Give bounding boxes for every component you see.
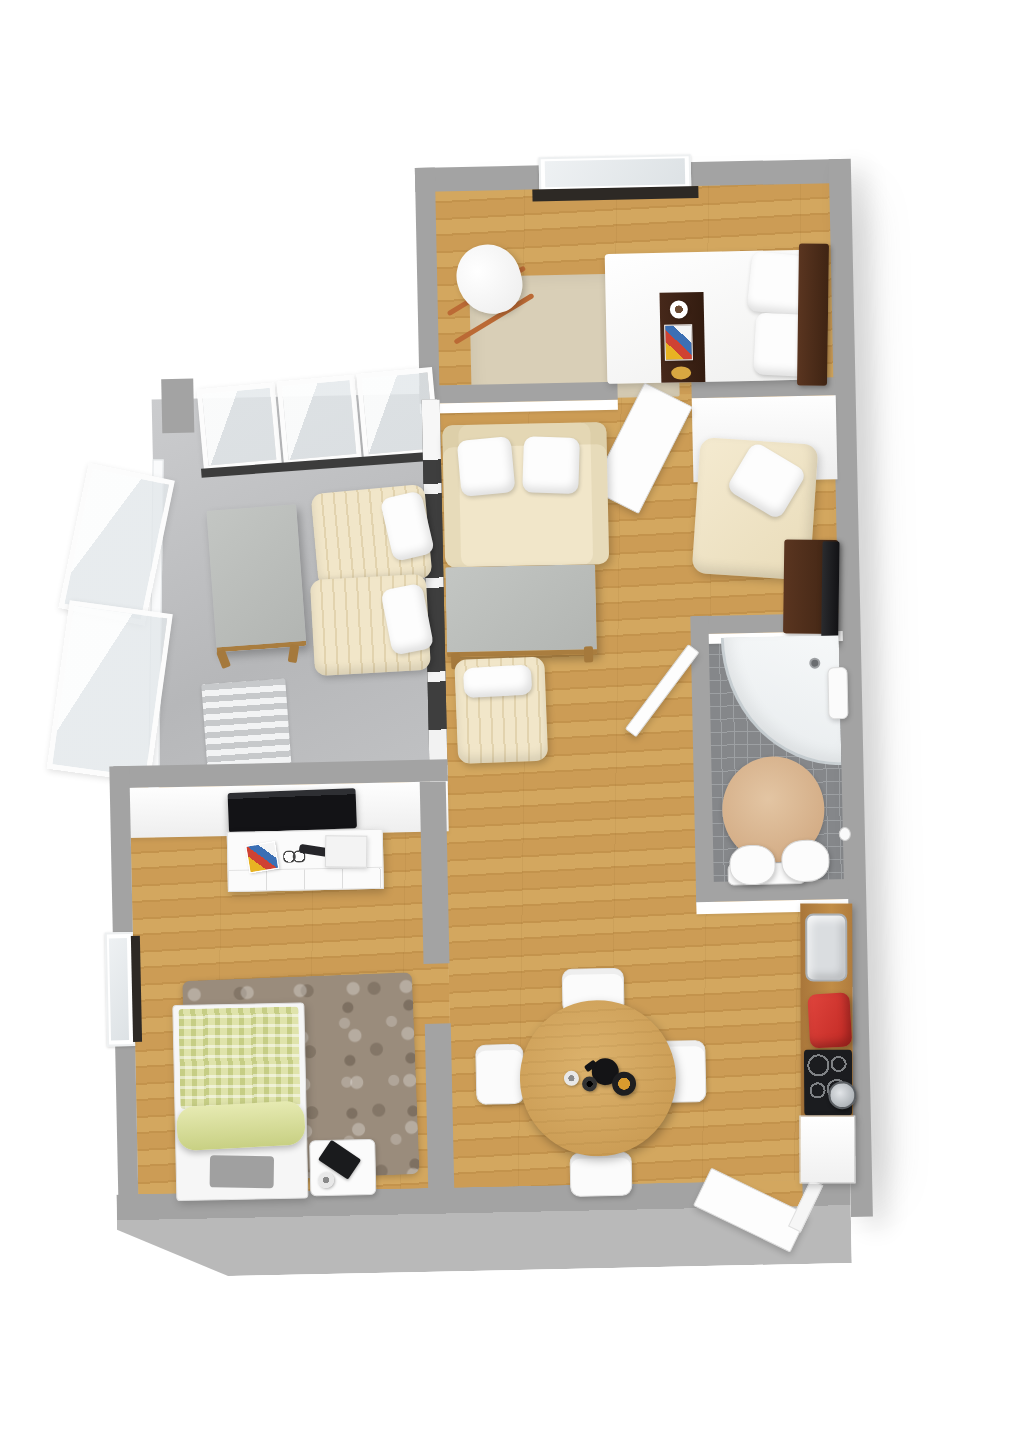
window-top-glass <box>545 158 686 187</box>
ottoman-pillow <box>463 664 533 698</box>
wall-stub-lower <box>425 1023 455 1192</box>
coffee-table <box>445 564 597 657</box>
single-bed-roll <box>176 1100 306 1151</box>
toilet <box>729 845 776 886</box>
dining-chair-bottom <box>569 1152 632 1197</box>
toilet-cistern <box>781 839 830 882</box>
single-bed-duvet <box>178 1007 300 1109</box>
balcony-glass-panel-2 <box>276 375 361 466</box>
bed-headboard <box>797 243 829 385</box>
wall-stub-upper <box>420 781 450 964</box>
balcony-striped-rug <box>201 679 291 775</box>
coffee-table-leg-2 <box>584 646 593 662</box>
apartment-3d-floor-plan <box>0 0 1024 1448</box>
dresser-box <box>325 835 367 868</box>
runner-magazine <box>664 324 693 361</box>
balcony-glass-panel-1 <box>197 382 282 471</box>
single-bed-foot-pad <box>210 1155 274 1188</box>
window-left-glass <box>109 938 129 1040</box>
kitchen-cabinet <box>799 1115 855 1183</box>
toilet-paper-holder <box>839 827 851 841</box>
bathroom-sink <box>827 667 848 719</box>
dresser-magazine <box>245 841 279 873</box>
balcony-table <box>206 504 306 652</box>
tv-leaning <box>821 541 839 645</box>
kitchen-sink <box>805 913 847 981</box>
red-canister <box>807 992 852 1048</box>
sofa-pillow-2 <box>522 436 580 494</box>
sofa-pillow-1 <box>457 436 516 497</box>
dining-chair-left <box>475 1044 524 1105</box>
wall-tv <box>228 788 357 833</box>
balcony-wall-stub <box>161 379 194 434</box>
floor-plan-canvas <box>0 0 1024 1448</box>
